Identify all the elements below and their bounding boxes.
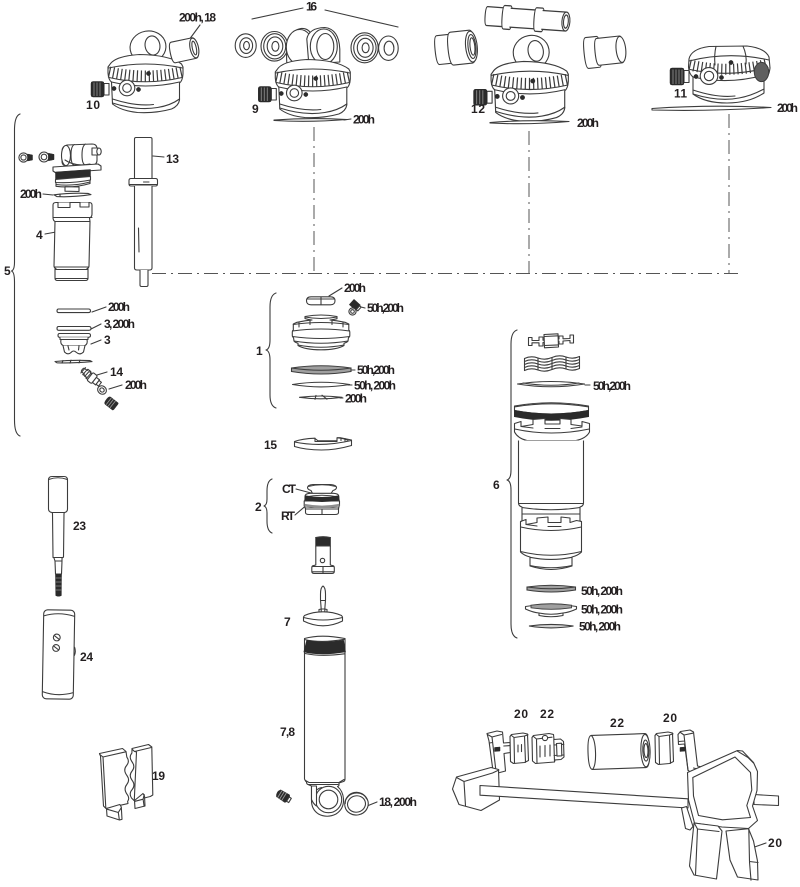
svg-text:50h, 200h: 50h, 200h [581,603,623,617]
svg-text:14: 14 [110,365,123,379]
svg-text:7,8: 7,8 [280,725,295,739]
svg-text:2: 2 [255,500,262,514]
svg-text:20: 20 [768,836,782,850]
svg-text:50h,200h: 50h,200h [367,301,404,315]
svg-text:50h, 200h: 50h, 200h [579,620,621,634]
svg-text:200h: 200h [20,187,42,201]
svg-text:5: 5 [4,264,11,278]
svg-text:18, 200h: 18, 200h [379,795,417,809]
svg-text:200h, 18: 200h, 18 [179,11,216,25]
svg-text:200h: 200h [108,300,130,314]
svg-text:10: 10 [86,98,100,112]
svg-text:16: 16 [306,0,317,14]
svg-text:13: 13 [166,152,179,166]
svg-text:50h,200h: 50h,200h [593,379,631,393]
svg-text:24: 24 [80,650,93,664]
svg-text:6: 6 [493,478,500,492]
svg-text:200h: 200h [577,116,599,130]
svg-text:1: 1 [256,344,263,358]
svg-text:RT: RT [281,509,296,523]
svg-text:200h: 200h [353,113,375,127]
svg-text:200h: 200h [344,281,366,295]
svg-text:20: 20 [514,707,528,721]
svg-text:200h: 200h [345,392,367,406]
svg-text:15: 15 [264,438,277,452]
svg-text:22: 22 [540,707,554,721]
svg-text:3: 3 [104,333,111,347]
svg-text:4: 4 [36,228,43,242]
svg-text:50h,200h: 50h,200h [357,363,395,377]
svg-text:200h: 200h [777,101,798,115]
svg-text:CT: CT [282,482,297,496]
svg-text:200h: 200h [125,378,147,392]
svg-text:7: 7 [284,615,291,629]
svg-text:50h, 200h: 50h, 200h [354,379,396,393]
svg-text:50h, 200h: 50h, 200h [581,584,623,598]
svg-text:11: 11 [674,87,687,101]
svg-text:23: 23 [73,519,86,533]
svg-text:19: 19 [152,769,165,783]
svg-text:9: 9 [252,102,259,116]
svg-text:22: 22 [610,716,624,730]
svg-text:3, 200h: 3, 200h [104,317,135,331]
svg-text:20: 20 [663,711,677,725]
